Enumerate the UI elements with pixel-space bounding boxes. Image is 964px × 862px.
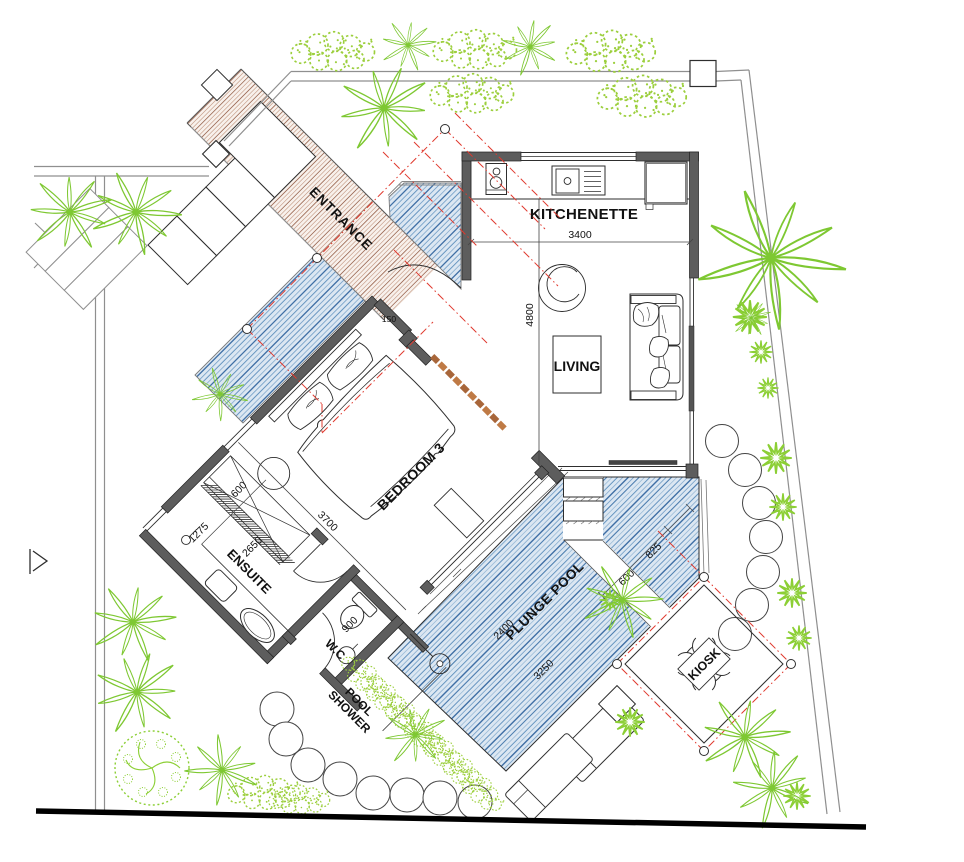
svg-text:150: 150 [382, 314, 396, 324]
svg-text:LIVING: LIVING [554, 358, 601, 374]
svg-text:KITCHENETTE: KITCHENETTE [530, 206, 638, 223]
svg-text:3400: 3400 [568, 229, 592, 241]
svg-text:4800: 4800 [524, 303, 536, 327]
